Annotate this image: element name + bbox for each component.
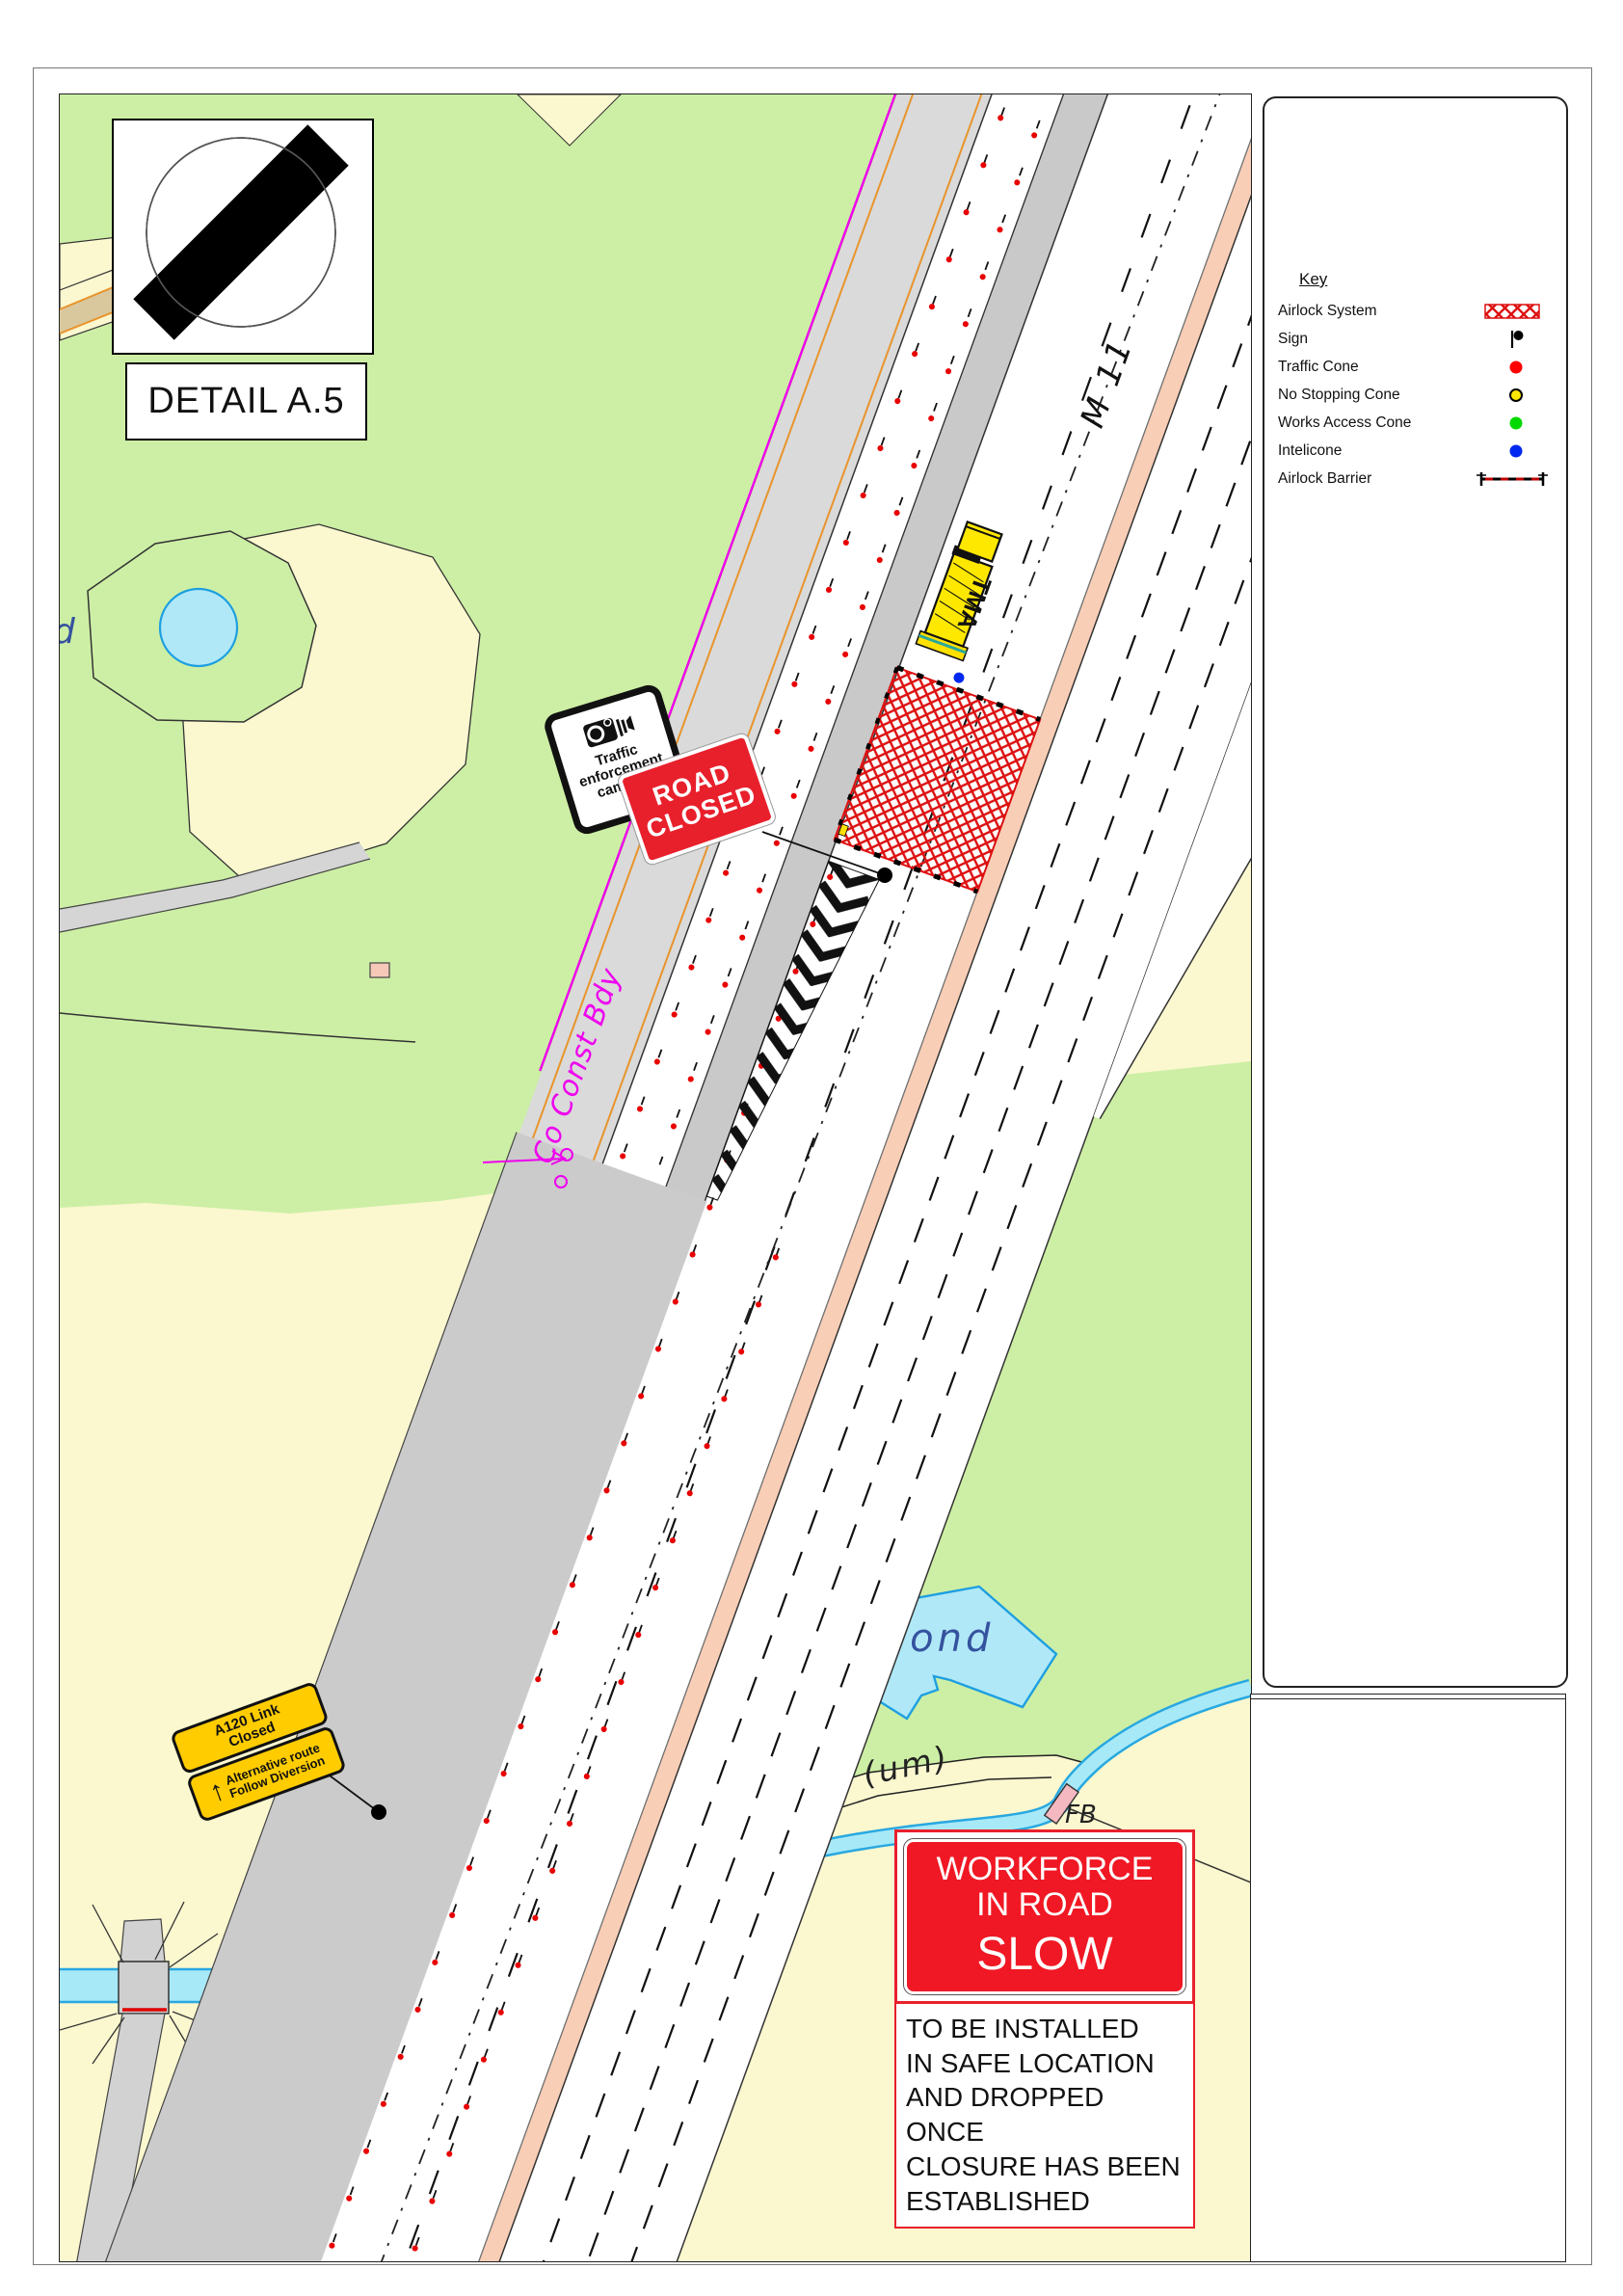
detail-label: DETAIL A.5 [147, 381, 344, 422]
note-line: TO BE INSTALLED [906, 2012, 1184, 2046]
culvert [119, 1962, 169, 2014]
detail-sign-box [112, 119, 374, 355]
legend-label: Intelicone [1278, 442, 1468, 460]
traffic-management-drawing: d Pond FB Path (um) [0, 0, 1623, 2296]
legend-row-no-stopping-cone: No Stopping Cone [1278, 381, 1556, 409]
key-title: Key [1299, 270, 1327, 289]
note-line: CLOSURE HAS BEEN [906, 2149, 1184, 2184]
legend-row-sign: Sign [1278, 325, 1556, 353]
legend-label: Traffic Cone [1278, 359, 1468, 376]
pond-partial-label: d [60, 612, 76, 652]
title-block-panel [1250, 1694, 1566, 2262]
legend-row-traffic-cone: Traffic Cone [1278, 353, 1556, 381]
legend-row-airlock-system: Airlock System [1278, 297, 1556, 325]
note-line: AND DROPPED ONCE [906, 2080, 1184, 2149]
footbridge-label: FB [1065, 1801, 1097, 1829]
installation-note: TO BE INSTALLED IN SAFE LOCATION AND DRO… [894, 2004, 1195, 2229]
building [370, 963, 389, 977]
track-stub [120, 1919, 165, 1962]
workforce-line2: IN ROAD [911, 1887, 1179, 1923]
legend-row-intelicone: Intelicone [1278, 437, 1556, 465]
intelicone-icon [1474, 441, 1551, 461]
legend-label: No Stopping Cone [1278, 387, 1468, 404]
national-speed-limit-sign [114, 120, 368, 349]
detail-label-box: DETAIL A.5 [125, 362, 367, 441]
traffic-cone-icon [1474, 358, 1551, 377]
legend-label: Airlock Barrier [1278, 470, 1468, 488]
note-line: IN SAFE LOCATION [906, 2046, 1184, 2081]
workforce-line3: SLOW [911, 1932, 1179, 1978]
works-access-cone-icon [1474, 414, 1551, 433]
workforce-slow-sign: WORKFORCE IN ROAD SLOW [904, 1839, 1185, 1994]
workforce-sign-frame: WORKFORCE IN ROAD SLOW [894, 1829, 1195, 2004]
airlock-barrier-icon [1474, 469, 1551, 489]
a120-sign-position [371, 1804, 386, 1820]
sign-flag-icon [1474, 330, 1551, 349]
key-panel: Key Airlock System Sign Traffic Cone No … [1263, 96, 1568, 1688]
airlock-hatch-icon [1474, 302, 1551, 321]
small-pond [160, 589, 237, 666]
panel-divider [1251, 1698, 1565, 1699]
legend-row-airlock-barrier: Airlock Barrier [1278, 465, 1556, 493]
legend-label: Airlock System [1278, 303, 1468, 320]
workforce-sign-group: WORKFORCE IN ROAD SLOW TO BE INSTALLED I… [894, 1829, 1195, 2229]
legend: Airlock System Sign Traffic Cone No Stop… [1278, 297, 1556, 493]
legend-label: Works Access Cone [1278, 414, 1468, 432]
no-stopping-cone-icon [1474, 386, 1551, 405]
workforce-line1: WORKFORCE [911, 1852, 1179, 1887]
note-line: ESTABLISHED [906, 2184, 1184, 2219]
legend-label: Sign [1278, 331, 1468, 348]
road-closed-position [877, 868, 892, 883]
legend-row-works-access-cone: Works Access Cone [1278, 409, 1556, 437]
